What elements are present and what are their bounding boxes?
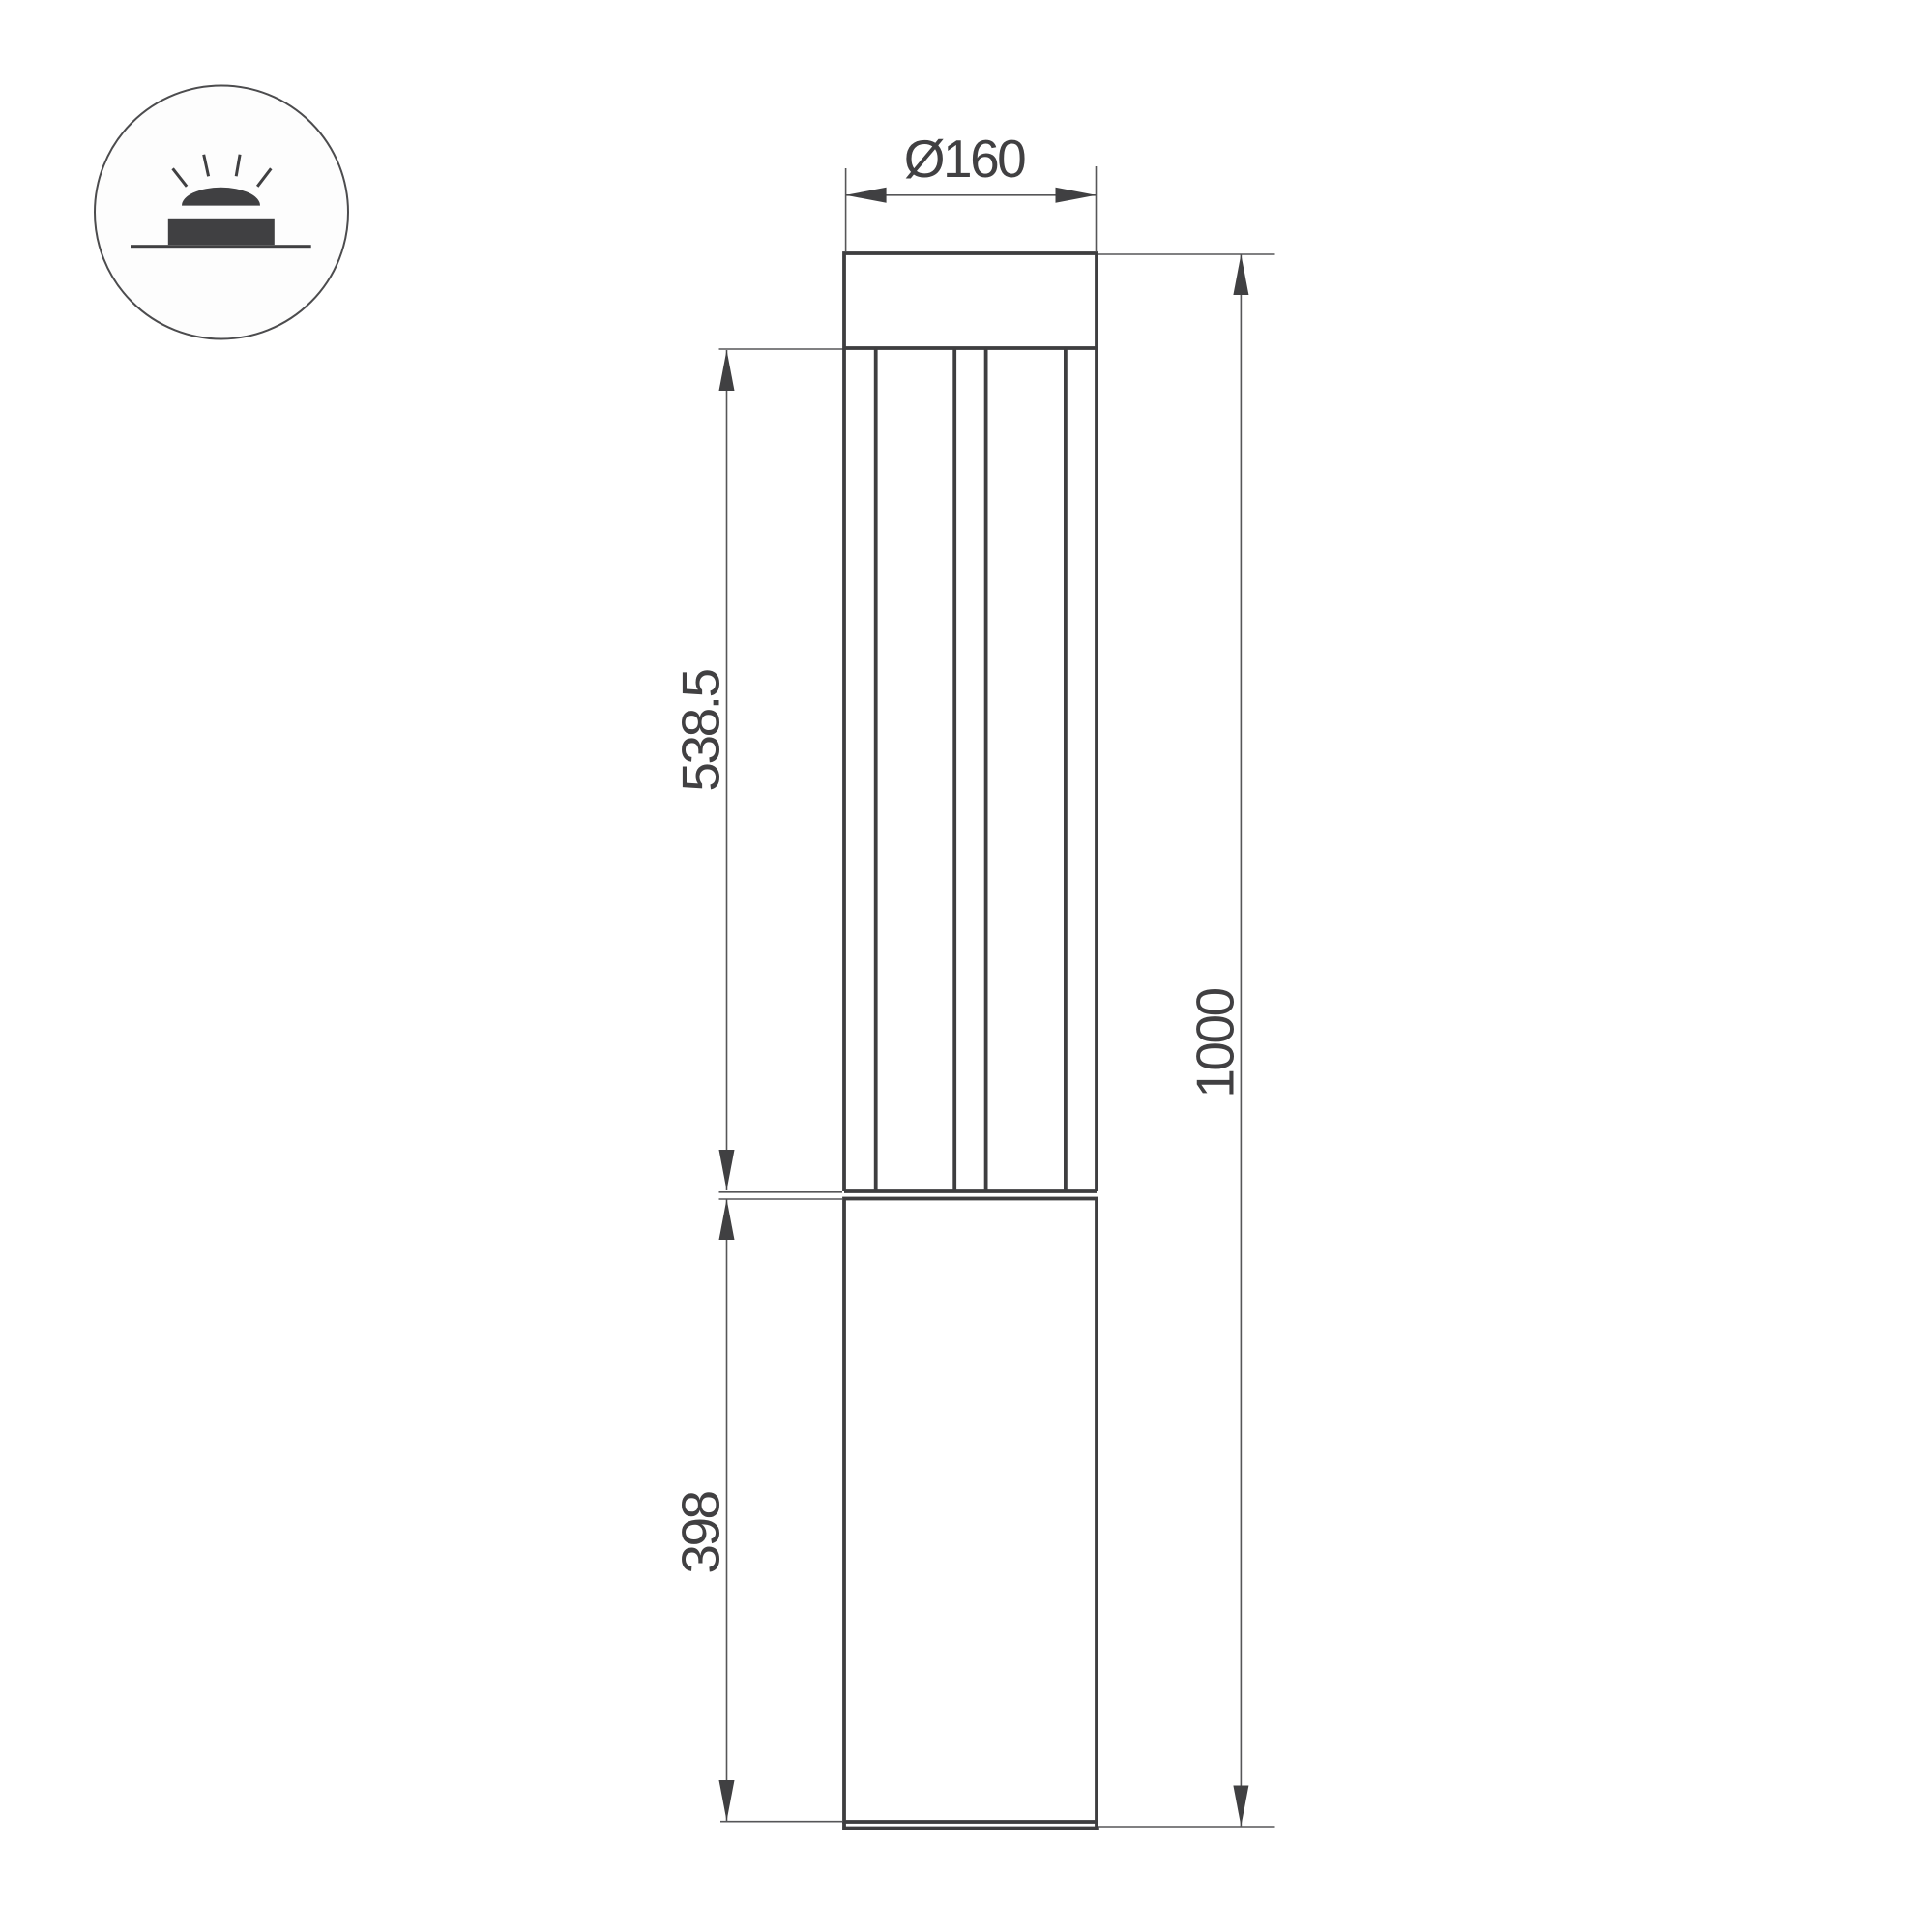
svg-text:1000: 1000 <box>1186 988 1245 1098</box>
svg-text:538.5: 538.5 <box>671 670 731 792</box>
svg-text:Ø160: Ø160 <box>904 129 1025 189</box>
svg-text:398: 398 <box>671 1491 731 1573</box>
